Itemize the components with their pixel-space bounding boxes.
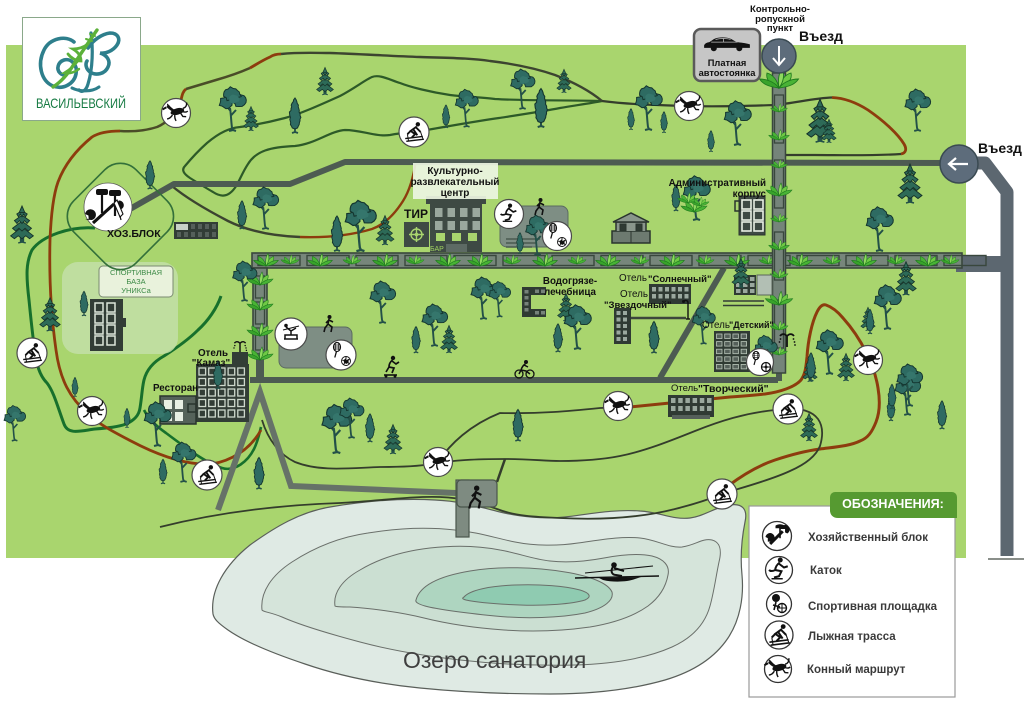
svg-text:пункт: пункт [767,23,794,34]
svg-text:"Камаз": "Камаз" [192,358,230,369]
svg-text:Озеро санатория: Озеро санатория [403,647,586,673]
svg-text:Въезд: Въезд [978,140,1022,156]
svg-text:ОБОЗНАЧЕНИЯ:: ОБОЗНАЧЕНИЯ: [842,497,944,511]
svg-text:Ресторан: Ресторан [153,383,198,394]
svg-text:развлекательный: развлекательный [411,177,500,188]
svg-text:ХОЗ.БЛОК: ХОЗ.БЛОК [107,228,161,240]
svg-text:БАР: БАР [430,246,444,253]
svg-text:УНИКСа: УНИКСа [121,286,151,295]
svg-text:Хозяйственный блок: Хозяйственный блок [808,532,928,544]
svg-text:автостоянка: автостоянка [699,68,757,78]
svg-text:"Звездочный": "Звездочный" [604,300,671,311]
svg-text:ВАСИЛЬЕВСКИЙ: ВАСИЛЬЕВСКИЙ [36,94,126,111]
svg-text:ТИР: ТИР [404,207,428,221]
svg-text:Отель: Отель [671,383,698,394]
svg-text:Отель: Отель [702,320,730,331]
svg-text:Каток: Каток [810,565,842,577]
svg-text:Культурно-: Культурно- [427,166,482,177]
svg-text:"Солнечный": "Солнечный" [648,274,711,285]
svg-text:Платная: Платная [708,58,747,68]
svg-text:Отель: Отель [620,289,648,300]
svg-text:Отель: Отель [619,273,647,284]
svg-text:"Детский": "Детский" [729,320,774,330]
svg-text:Конный маршрут: Конный маршрут [807,664,906,676]
svg-text:Административный: Административный [669,178,766,189]
svg-text:Лыжная трасса: Лыжная трасса [808,631,896,643]
svg-text:лечебница: лечебница [544,287,596,298]
svg-text:центр: центр [441,188,470,199]
svg-text:Спортивная площадка: Спортивная площадка [808,601,938,613]
svg-text:"Творческий": "Творческий" [698,383,769,395]
svg-text:Въезд: Въезд [799,28,843,44]
svg-text:Водогрязе-: Водогрязе- [543,276,597,287]
svg-text:корпус: корпус [733,189,767,200]
svg-text:БАЗА: БАЗА [126,277,145,286]
